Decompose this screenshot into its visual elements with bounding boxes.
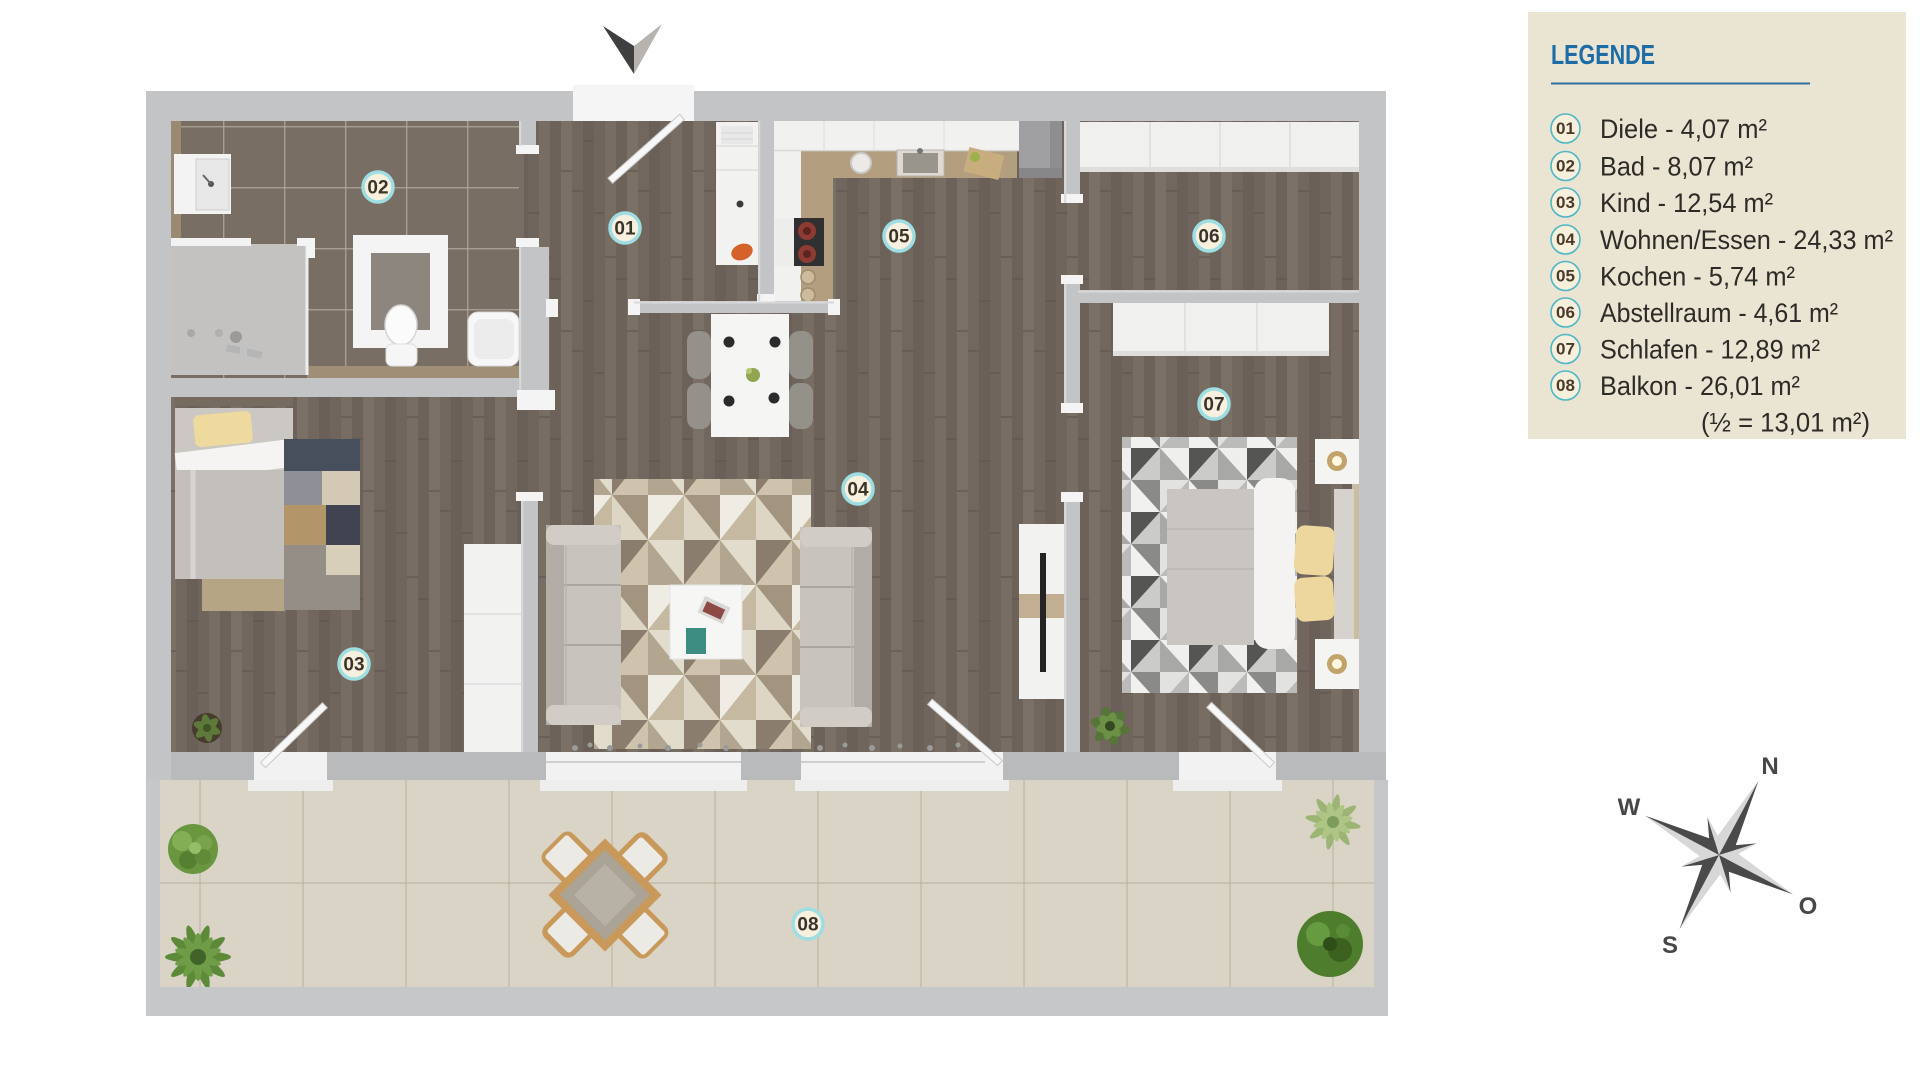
svg-text:Diele - 4,07 m²: Diele - 4,07 m² — [1600, 114, 1767, 144]
svg-text:01: 01 — [614, 219, 636, 240]
svg-text:N: N — [1761, 753, 1778, 780]
svg-text:06: 06 — [1198, 227, 1219, 248]
svg-text:(½ = 13,01 m²): (½ = 13,01 m²) — [1701, 408, 1870, 438]
svg-text:02: 02 — [1556, 157, 1575, 176]
svg-text:01: 01 — [1556, 119, 1575, 138]
svg-text:Balkon - 26,01 m²: Balkon - 26,01 m² — [1600, 371, 1800, 401]
svg-text:03: 03 — [1556, 193, 1575, 212]
svg-text:LEGENDE: LEGENDE — [1551, 39, 1655, 70]
svg-text:S: S — [1662, 932, 1678, 959]
svg-text:Kochen - 5,74 m²: Kochen - 5,74 m² — [1600, 262, 1795, 292]
svg-text:04: 04 — [1556, 230, 1575, 249]
svg-text:Wohnen/Essen - 24,33 m²: Wohnen/Essen - 24,33 m² — [1600, 225, 1893, 255]
svg-text:Abstellraum - 4,61 m²: Abstellraum - 4,61 m² — [1600, 298, 1838, 328]
svg-text:02: 02 — [367, 178, 388, 199]
svg-text:Schlafen - 12,89 m²: Schlafen - 12,89 m² — [1600, 335, 1820, 365]
svg-text:05: 05 — [888, 227, 910, 248]
svg-text:05: 05 — [1556, 267, 1575, 286]
svg-text:06: 06 — [1556, 303, 1575, 322]
svg-text:W: W — [1618, 794, 1641, 821]
svg-text:Kind - 12,54 m²: Kind - 12,54 m² — [1600, 188, 1773, 218]
svg-text:08: 08 — [797, 915, 818, 936]
svg-text:04: 04 — [847, 480, 869, 501]
svg-text:03: 03 — [343, 655, 364, 676]
svg-text:07: 07 — [1556, 340, 1575, 359]
svg-text:08: 08 — [1556, 376, 1575, 395]
svg-text:O: O — [1799, 893, 1818, 920]
svg-text:07: 07 — [1203, 395, 1224, 416]
svg-text:Bad - 8,07 m²: Bad - 8,07 m² — [1600, 152, 1753, 182]
